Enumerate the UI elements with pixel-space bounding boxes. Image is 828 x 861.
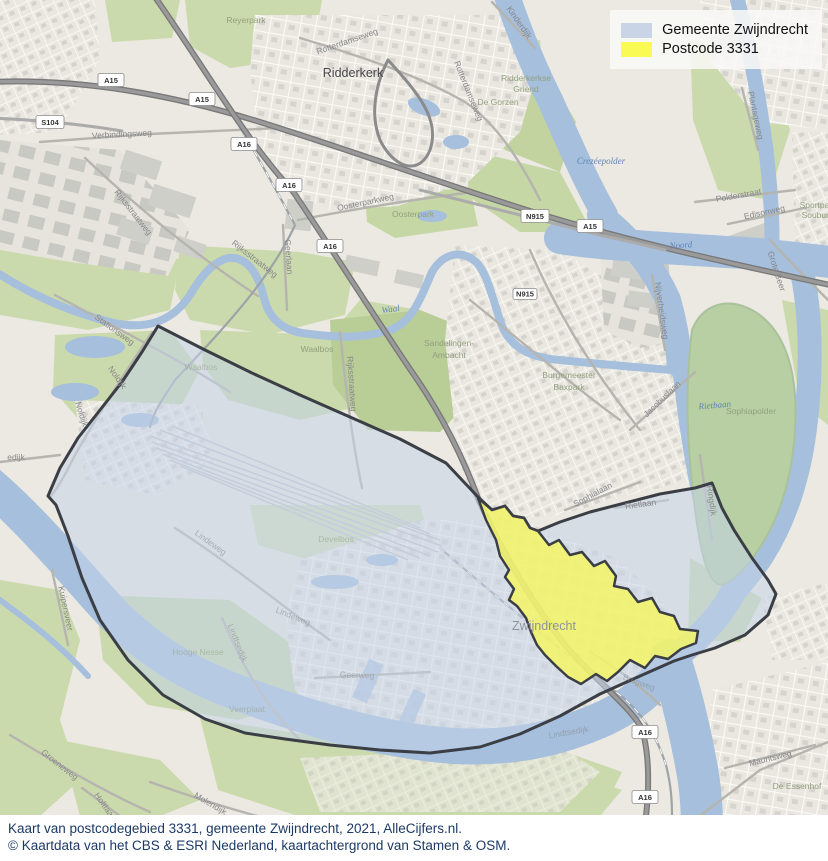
water-label: Crezéepolder [577,156,626,166]
area-label: Veerplaat [229,704,266,714]
svg-text:A16: A16 [282,181,296,190]
shield-a15: A15 [189,93,215,106]
area-label: Griend [513,84,539,94]
area-label: De Gorzen [477,97,518,107]
basemap-svg: Ridderkerk Zwijndrecht Reyerpark De Gorz… [0,0,828,816]
legend-label: Postcode 3331 [662,41,759,57]
svg-text:N915: N915 [526,212,544,221]
shield-a16: A16 [231,138,257,151]
area-label: Oosterpark [392,209,435,219]
shield-a16: A16 [276,179,302,192]
area-label: Reyerpark [226,15,266,25]
legend-swatch-postcode [621,42,652,57]
area-label: Sandelingen- [424,338,474,348]
legend-item-postcode: Postcode 3331 [621,41,808,57]
svg-text:A15: A15 [195,95,209,104]
svg-text:A16: A16 [237,140,251,149]
svg-text:A15: A15 [104,76,118,85]
shield-n915: N915 [521,210,549,223]
area-label: Ambacht [432,350,466,360]
area-label: Waalbos [301,344,334,354]
legend-swatch-gemeente [621,23,652,38]
street-label: edijk [7,452,25,462]
area-label: Hooge Nesse [172,647,224,657]
legend-label: Gemeente Zwijndrecht [662,22,808,38]
shield-s104: S104 [36,116,64,129]
svg-text:A16: A16 [638,793,652,802]
shield-a16: A16 [632,726,658,739]
map-canvas[interactable]: Ridderkerk Zwijndrecht Reyerpark De Gorz… [0,0,828,816]
caption-line-2: © Kaartdata van het CBS & ESRI Nederland… [8,837,828,854]
svg-text:A15: A15 [583,222,597,231]
area-label: Waalbos [185,362,218,372]
area-label: Sophiapolder [726,406,776,416]
area-label: Develbos [318,534,353,544]
legend: Gemeente Zwijndrecht Postcode 3331 [610,10,822,69]
screenshot: Ridderkerk Zwijndrecht Reyerpark De Gorz… [0,0,828,861]
area-label: Burgemeester [542,370,596,380]
shield-a15: A15 [577,220,603,233]
town-label-ridderkerk: Ridderkerk [323,66,384,80]
legend-item-gemeente: Gemeente Zwijndrecht [621,22,808,38]
area-label: Souburgh [802,210,828,220]
area-label: Ridderkerkse [501,73,551,83]
shield-a15: A15 [98,74,124,87]
shield-a16: A16 [632,791,658,804]
street-label: Geerweg [340,669,375,680]
area-label: Sportpark [800,200,828,210]
town-label-zwijndrecht: Zwijndrecht [512,619,576,633]
water-label: Noord [668,239,693,251]
area-label: Baxpark [553,382,585,392]
shield-n915: N915 [513,289,537,300]
svg-text:S104: S104 [41,118,59,127]
shield-a16: A16 [317,240,343,253]
area-label: De Essenhof [773,781,822,791]
caption: Kaart van postcodegebied 3331, gemeente … [0,815,828,861]
svg-text:A16: A16 [638,728,652,737]
svg-text:N915: N915 [516,290,534,299]
caption-line-1: Kaart van postcodegebied 3331, gemeente … [8,820,828,837]
svg-text:A16: A16 [323,242,337,251]
